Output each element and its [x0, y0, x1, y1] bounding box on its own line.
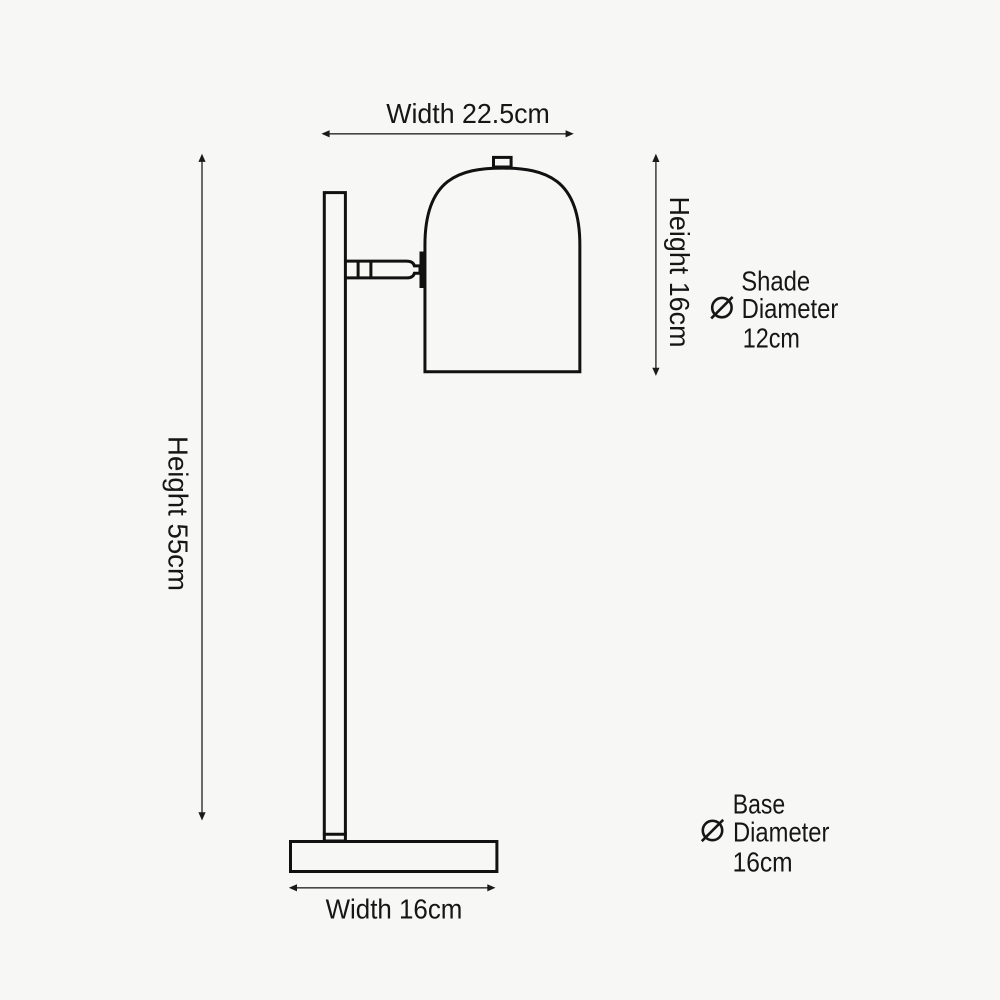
svg-text:Shade: Shade [741, 266, 810, 297]
svg-text:Height 16cm: Height 16cm [664, 197, 695, 348]
svg-text:12cm: 12cm [743, 323, 800, 354]
svg-text:Height 55cm: Height 55cm [163, 436, 194, 591]
svg-text:16cm: 16cm [733, 846, 793, 877]
svg-text:Diameter: Diameter [742, 293, 839, 324]
svg-text:Width 16cm: Width 16cm [326, 894, 463, 925]
svg-text:Base: Base [733, 788, 785, 819]
svg-text:Diameter: Diameter [733, 816, 830, 847]
svg-text:Width 22.5cm: Width 22.5cm [386, 98, 550, 129]
